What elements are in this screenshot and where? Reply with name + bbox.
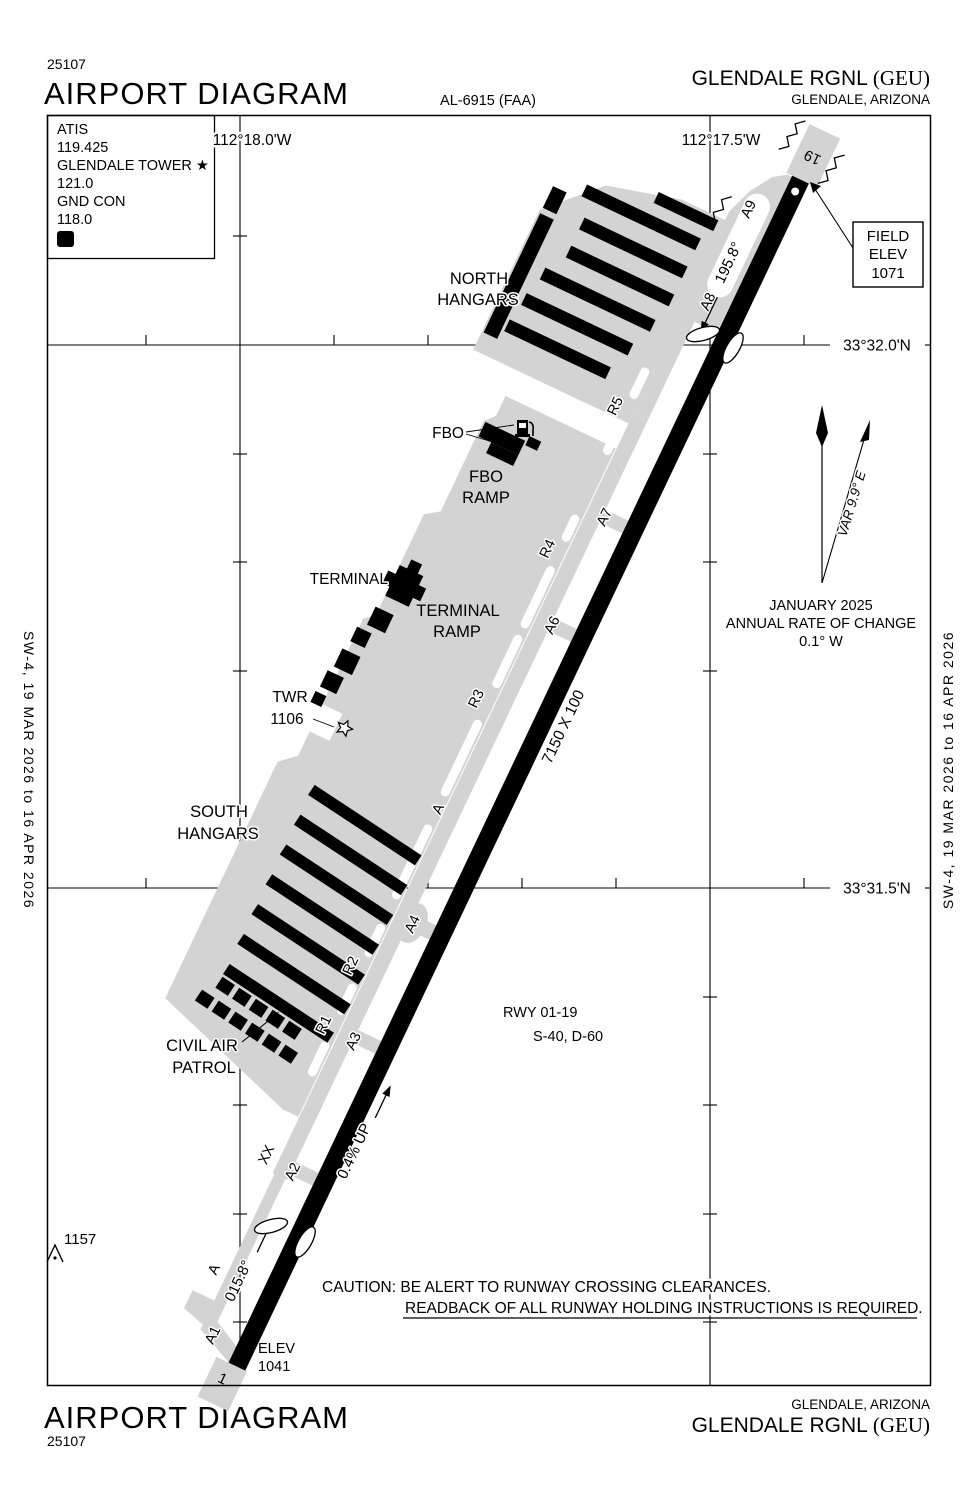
closed-taxiway-marker: XX xyxy=(255,1143,278,1168)
caution-line-1: CAUTION: BE ALERT TO RUNWAY CROSSING CLE… xyxy=(322,1279,771,1296)
field-elev-callout: FIELD ELEV 1071 xyxy=(810,182,923,287)
ground-label: GND CON xyxy=(57,194,125,210)
field-elev-label-1: FIELD xyxy=(867,228,910,245)
variation-rate-label: ANNUAL RATE OF CHANGE xyxy=(726,616,916,632)
edition-note-right: SW-4, 19 MAR 2026 to 16 APR 2026 xyxy=(940,631,956,909)
city-state-bottom: GLENDALE, ARIZONA xyxy=(791,1397,930,1412)
variation-label: VAR 9.9° E xyxy=(835,468,869,538)
fbo-label: FBO xyxy=(432,425,464,442)
south-hangars-label-2: HANGARS xyxy=(177,825,259,843)
ground-frequency: 118.0 xyxy=(57,212,92,228)
atis-label: ATIS xyxy=(57,122,88,138)
fbo-ramp-label-2: RAMP xyxy=(462,489,510,507)
field-elev-label-2: ELEV xyxy=(869,246,907,263)
tower-frequency: 121.0 xyxy=(57,176,93,192)
north-hangars-label-2: HANGARS xyxy=(437,291,519,309)
variation-date: JANUARY 2025 xyxy=(769,598,872,614)
rwy1-elev-value: 1041 xyxy=(258,1359,290,1375)
latitude-label-bottom: 33°31.5'N xyxy=(843,881,911,898)
edition-note-left: SW-4, 19 MAR 2026 to 16 APR 2026 xyxy=(21,631,37,909)
comm-frequency-box: ATIS 119.425 GLENDALE TOWER ★ 121.0 GND … xyxy=(48,116,215,259)
north-hangars-label-1: NORTH xyxy=(450,270,508,288)
civil-air-patrol-label-1: CIVIL AIR xyxy=(166,1037,238,1055)
twr-elevation: 1106 xyxy=(270,711,303,728)
true-north-arrowhead xyxy=(816,405,828,447)
al-number: AL-6915 (FAA) xyxy=(440,93,536,109)
chart-number-bottom: 25107 xyxy=(47,1433,86,1449)
airport-diagram-page: 25107 AIRPORT DIAGRAM AL-6915 (FAA) GLEN… xyxy=(0,0,978,1500)
obstacle-symbol xyxy=(47,1245,63,1262)
terminal-ramp-label-2: RAMP xyxy=(433,623,481,641)
runway-designation: RWY 01-19 xyxy=(503,1005,577,1021)
page-title-bottom: AIRPORT DIAGRAM xyxy=(44,1400,349,1435)
airport-title-top: GLENDALE RGNL (GEU) xyxy=(692,66,930,90)
obstacle-elevation: 1157 xyxy=(64,1231,96,1248)
field-elev-leader-line xyxy=(815,189,853,248)
slope-arrowhead xyxy=(382,1084,394,1097)
north-arrow-assembly: VAR 9.9° E xyxy=(816,405,870,583)
rwy1-elev-label: ELEV xyxy=(258,1341,295,1357)
field-elev-value: 1071 xyxy=(871,265,904,282)
diagram-d-letter: D xyxy=(61,232,70,247)
city-state-top: GLENDALE, ARIZONA xyxy=(791,92,930,107)
runway-strength: S-40, D-60 xyxy=(533,1029,603,1045)
terminal-label: TERMINAL xyxy=(310,571,389,588)
longitude-label-right: 112°17.5'W xyxy=(682,132,761,149)
chart-number-top: 25107 xyxy=(47,56,86,72)
caution-line-2: READBACK OF ALL RUNWAY HOLDING INSTRUCTI… xyxy=(405,1300,923,1317)
magnetic-north-arrowhead xyxy=(860,420,870,442)
airport-title-bottom: GLENDALE RGNL (GEU) xyxy=(692,1413,930,1437)
atis-frequency: 119.425 xyxy=(57,140,108,156)
terminal-ramp-label-1: TERMINAL xyxy=(416,602,499,620)
south-hangars-label-1: SOUTH xyxy=(190,803,248,821)
civil-air-patrol-label-2: PATROL xyxy=(172,1059,236,1077)
longitude-label-left: 112°18.0'W xyxy=(213,132,292,149)
page-title-top: AIRPORT DIAGRAM xyxy=(44,76,349,111)
fbo-ramp-label-1: FBO xyxy=(469,468,503,486)
latitude-label-top: 33°32.0'N xyxy=(843,338,911,355)
twr-label: TWR xyxy=(272,689,307,706)
diagram-canvas: 25107 AIRPORT DIAGRAM AL-6915 (FAA) GLEN… xyxy=(0,0,978,1500)
slope-arrow-line xyxy=(375,1093,387,1118)
variation-rate-value: 0.1° W xyxy=(799,634,843,650)
taxiway-label-a-south: A xyxy=(205,1262,224,1278)
tower-label: GLENDALE TOWER ★ xyxy=(57,158,209,174)
